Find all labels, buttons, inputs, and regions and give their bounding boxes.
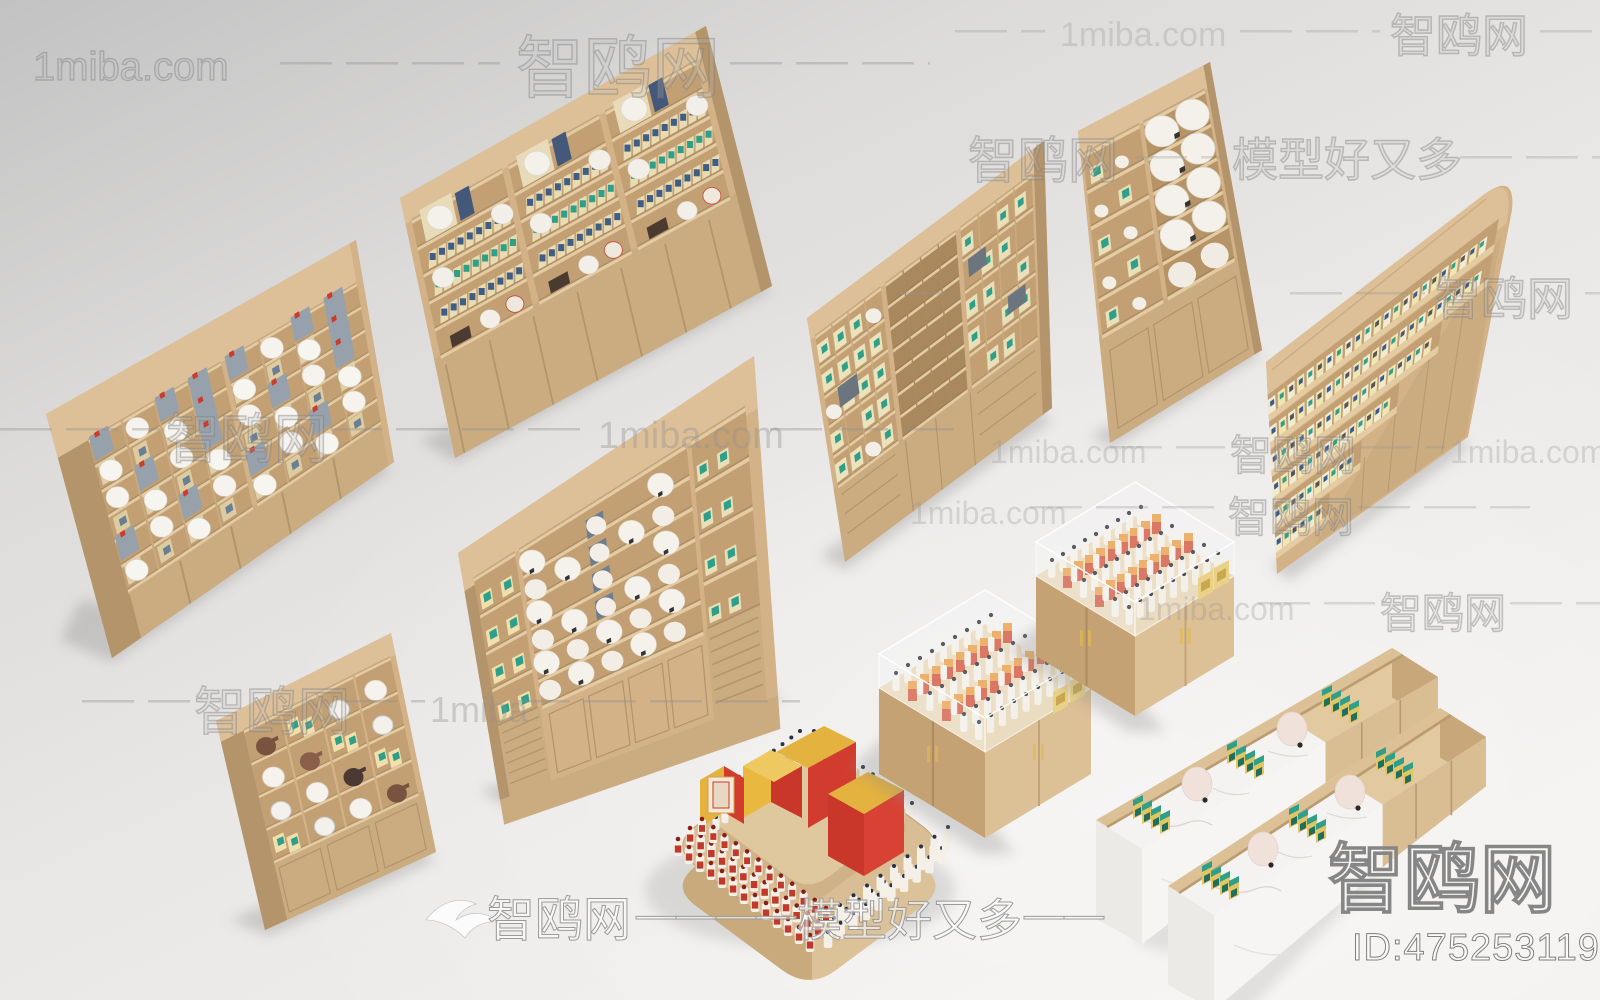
svg-text:1miba.com: 1miba.com xyxy=(598,415,784,457)
svg-text:智鸥网: 智鸥网 xyxy=(1390,10,1528,62)
svg-text:1miba.com: 1miba.com xyxy=(1138,591,1295,627)
svg-text:1miba: 1miba xyxy=(430,689,529,730)
svg-text:智鸥网: 智鸥网 xyxy=(968,133,1118,189)
svg-text:ID:475253119: ID:475253119 xyxy=(1352,927,1600,969)
svg-text:1miba.com: 1miba.com xyxy=(1060,16,1226,54)
svg-text:智鸥网: 智鸥网 xyxy=(194,684,350,742)
svg-text:智鸥网: 智鸥网 xyxy=(166,410,328,470)
svg-text:————: ———— xyxy=(636,893,796,937)
svg-text:模型好又多: 模型好又多 xyxy=(1232,134,1462,186)
svg-text:智鸥网: 智鸥网 xyxy=(1435,273,1573,325)
svg-text:智鸥网: 智鸥网 xyxy=(1380,590,1506,637)
svg-text:——: —— xyxy=(1024,893,1104,937)
svg-text:智鸥网: 智鸥网 xyxy=(516,31,720,107)
svg-text:1miba.com: 1miba.com xyxy=(33,45,229,89)
svg-text:模型好又多: 模型好又多 xyxy=(797,895,1022,946)
svg-text:1miba.com: 1miba.com xyxy=(1450,434,1600,470)
svg-text:智鸥网: 智鸥网 xyxy=(487,894,631,947)
svg-text:1miba.com: 1miba.com xyxy=(990,434,1147,470)
svg-text:智鸥网: 智鸥网 xyxy=(1228,494,1354,541)
svg-text:智鸥网: 智鸥网 xyxy=(1230,432,1356,479)
svg-text:1miba.com: 1miba.com xyxy=(910,495,1067,531)
svg-text:智鸥网: 智鸥网 xyxy=(1328,838,1556,923)
